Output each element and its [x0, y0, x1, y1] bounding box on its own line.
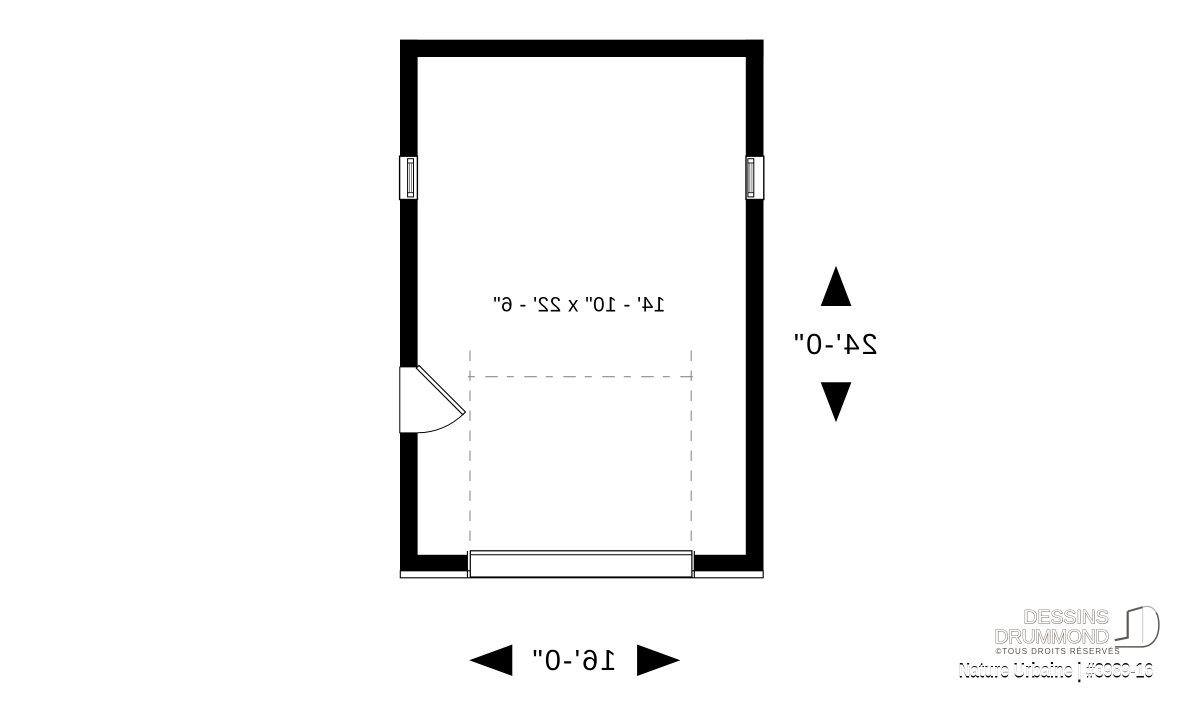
svg-text:14' - 10" x 22' - 6": 14' - 10" x 22' - 6" [493, 294, 666, 317]
svg-text:16'-0": 16'-0" [530, 645, 616, 677]
svg-text:DESSINS: DESSINS [1024, 606, 1109, 628]
svg-text:24'-0": 24'-0" [792, 329, 878, 361]
svg-text:DRUMMOND: DRUMMOND [994, 626, 1109, 648]
svg-text:©TOUS DROITS RÉSERVÉS: ©TOUS DROITS RÉSERVÉS [996, 647, 1121, 656]
svg-text:Nature Urbaine | #3989-16: Nature Urbaine | #3989-16 [959, 661, 1154, 679]
